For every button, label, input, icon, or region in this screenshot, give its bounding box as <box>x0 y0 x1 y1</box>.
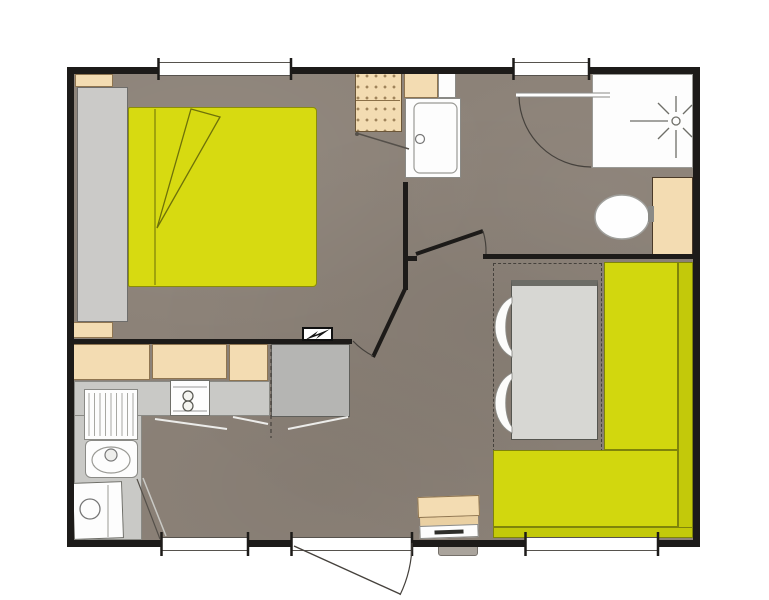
entrance-door-opening <box>291 537 412 551</box>
heater <box>417 495 480 539</box>
bench-seat-right <box>604 262 678 450</box>
two-burner-hob <box>170 380 210 416</box>
bottom-window-right <box>525 537 658 551</box>
top-window <box>158 62 291 76</box>
sink-bowl <box>85 440 138 478</box>
wall-cabinet-2 <box>152 344 227 379</box>
heater-top <box>417 495 480 518</box>
dining-table <box>511 280 598 440</box>
corner-shelf <box>75 74 113 87</box>
closet-shelf-line <box>356 100 400 101</box>
bench-backrest-right <box>678 262 693 528</box>
hanging-closet <box>355 73 402 132</box>
vanity-cabinet <box>404 72 438 98</box>
floor-plan <box>0 0 769 600</box>
vanity-side-box <box>438 72 456 98</box>
washbasin <box>405 98 461 178</box>
wall-bathroom-jamb <box>403 256 417 261</box>
bottom-window-left <box>161 537 248 551</box>
wall-cabinet-3 <box>229 344 268 381</box>
sink-drainer <box>84 389 138 440</box>
electrical-panel <box>302 327 333 341</box>
entrance-door-leaf <box>294 546 400 594</box>
nightstand <box>73 322 113 338</box>
double-bed <box>128 107 317 287</box>
bench-seat-bottom <box>493 450 678 527</box>
wall-cabinet-1 <box>73 344 150 380</box>
wall-left <box>67 67 74 547</box>
bathroom-door-opening <box>513 62 590 76</box>
wall-bathroom-left <box>403 182 408 290</box>
kitchen-appliance <box>72 481 124 540</box>
wall-right <box>693 67 700 547</box>
bathroom-storage-cabinet <box>652 177 693 255</box>
tall-cabinet-fridge <box>271 344 350 417</box>
wall-bathroom-living <box>483 254 693 259</box>
shower <box>592 74 693 168</box>
wardrobe <box>77 87 128 322</box>
